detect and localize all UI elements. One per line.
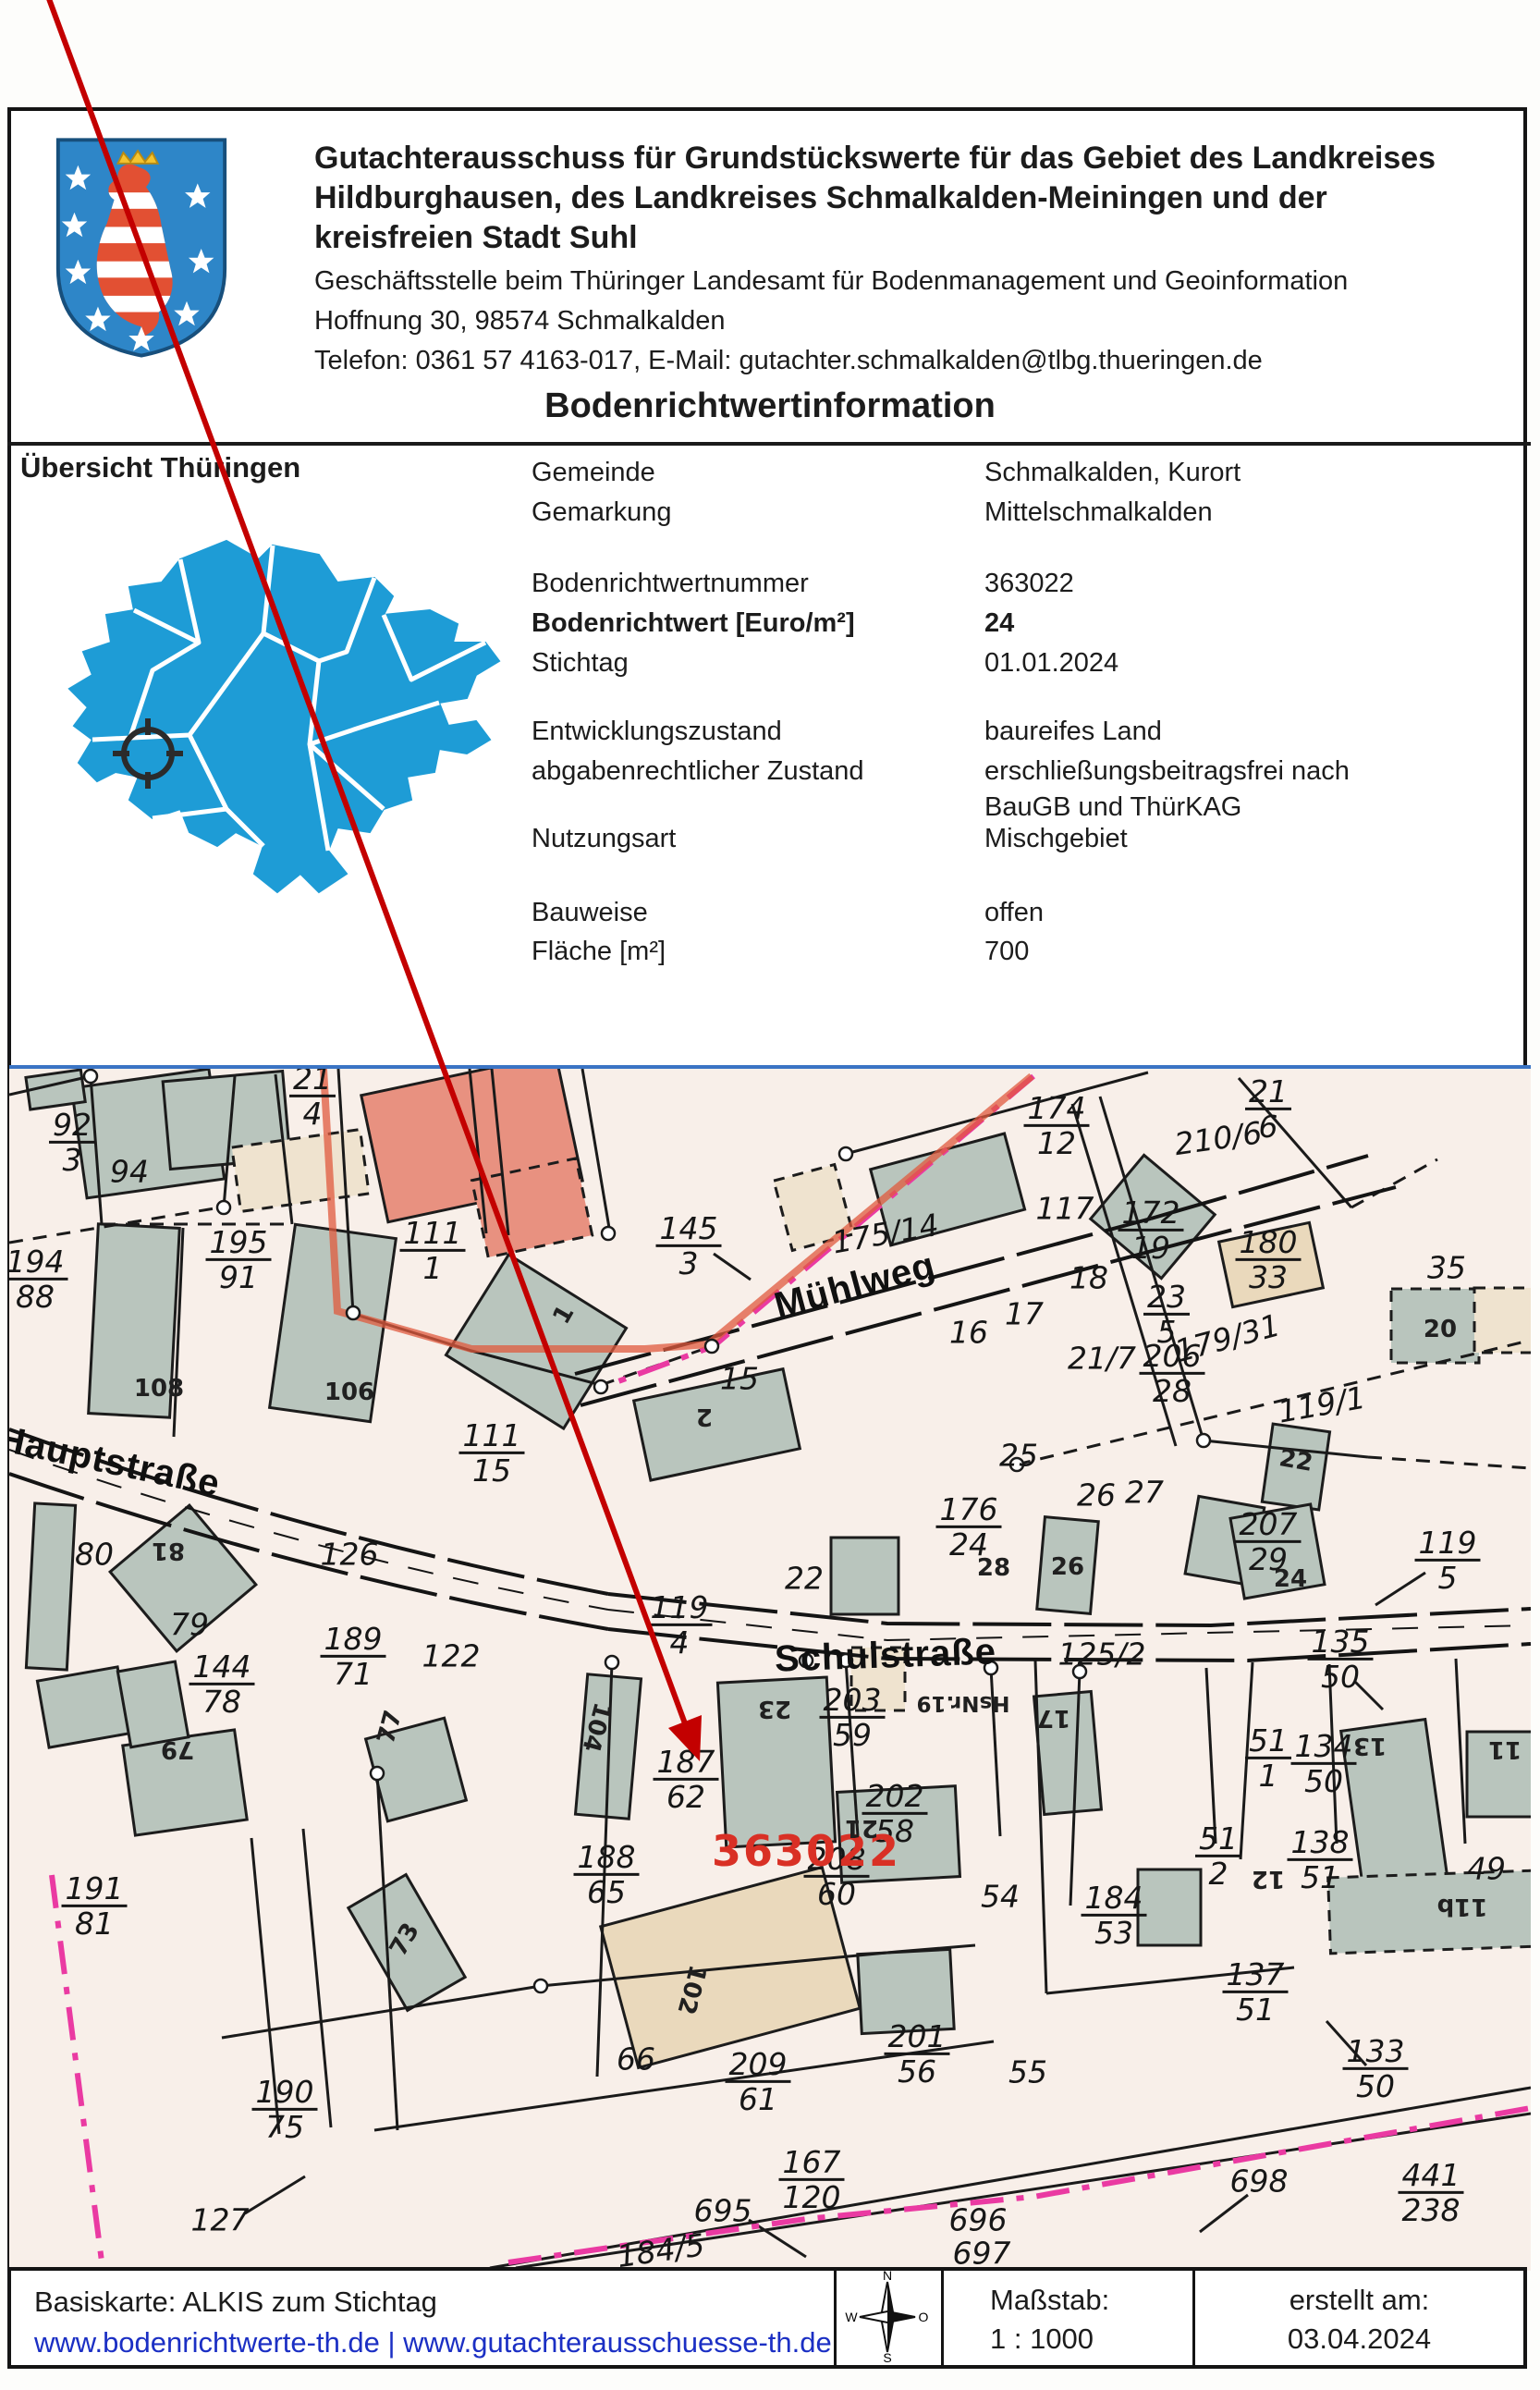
- footer-scale-cell: Maßstab: 1 : 1000: [944, 2271, 1195, 2365]
- info-value-stichtag: 01.01.2024: [984, 645, 1405, 681]
- svg-text:S: S: [883, 2350, 891, 2363]
- map-label: 20628: [1140, 1341, 1205, 1407]
- info-label-stichtag: Stichtag: [532, 645, 966, 681]
- org-contact-line: Telefon: 0361 57 4163-017, E-Mail: gutac…: [314, 346, 1507, 376]
- org-title-line-3: kreisfreien Stadt Suhl: [314, 218, 1507, 258]
- map-label: 26: [1051, 1553, 1084, 1581]
- map-label: 1195: [1415, 1527, 1481, 1594]
- massstab-label: Maßstab:: [990, 2284, 1192, 2317]
- map-footer: Basiskarte: ALKIS zum Stichtag www.boden…: [7, 2267, 1527, 2369]
- map-label: 13350: [1343, 2036, 1409, 2102]
- map-label: 94: [110, 1157, 149, 1189]
- compass-rose-icon: N S W O: [837, 2271, 938, 2363]
- map-label: 54: [981, 1881, 1020, 1914]
- info-label-brw-nummer: Bodenrichtwertnummer: [532, 566, 966, 602]
- basiskarte-text: Basiskarte: ALKIS zum Stichtag: [34, 2286, 437, 2319]
- map-label: 55: [1008, 2057, 1047, 2090]
- map-label: 11: [1488, 1735, 1522, 1763]
- map-label: 2: [696, 1403, 713, 1430]
- bodenrichtwert-document: { "header": { "title_lines": [ "Gutachte…: [0, 0, 1540, 2390]
- map-label: 23: [758, 1695, 791, 1722]
- map-label: 49: [1467, 1854, 1506, 1886]
- map-label: 1194: [647, 1592, 713, 1659]
- thuringia-overview-map: [42, 504, 504, 929]
- street-label: Schulstraße: [774, 1631, 996, 1680]
- map-label: 35: [1427, 1253, 1466, 1285]
- map-label: 15: [720, 1364, 759, 1396]
- footer-links[interactable]: www.bodenrichtwerte-th.de | www.gutachte…: [34, 2326, 832, 2359]
- map-label: 1111: [400, 1218, 466, 1284]
- map-label: 17219: [1118, 1197, 1184, 1264]
- map-label: 19591: [206, 1227, 272, 1293]
- map-label: 441238: [1399, 2160, 1464, 2226]
- map-label: 80: [75, 1539, 114, 1572]
- map-label: 106: [324, 1379, 374, 1406]
- info-value-bauweise: offen: [984, 895, 1405, 931]
- info-value-gemarkung: Mittelschmalkalden: [984, 495, 1405, 531]
- map-label: 104: [576, 1699, 616, 1755]
- map-label: 28: [977, 1554, 1010, 1582]
- map-label: 125/2: [1057, 1639, 1145, 1672]
- map-label: 698: [1230, 2166, 1289, 2199]
- info-value-flaeche: 700: [984, 934, 1405, 970]
- map-label: 117: [1036, 1194, 1094, 1226]
- street-label: Hauptstraße: [9, 1418, 224, 1506]
- org-address-line-1: Geschäftsstelle beim Thüringer Landesamt…: [314, 266, 1507, 297]
- map-label: 695: [694, 2196, 752, 2228]
- map-label: 16: [949, 1318, 988, 1350]
- map-label: 210/6: [1172, 1117, 1264, 1161]
- map-label: 512: [1195, 1823, 1241, 1890]
- map-label: 13851: [1288, 1827, 1353, 1894]
- map-label: 923: [49, 1109, 95, 1176]
- map-label: 73: [385, 1918, 425, 1961]
- erstellt-value: 03.04.2024: [1195, 2323, 1523, 2356]
- map-label: 184/5: [615, 2229, 706, 2271]
- document-title: Bodenrichtwertinformation: [9, 386, 1531, 426]
- map-label: 17: [1037, 1704, 1070, 1732]
- map-label: 20359: [820, 1685, 886, 1751]
- info-label-bauweise: Bauweise: [532, 895, 966, 931]
- map-label: 119/1: [1276, 1382, 1368, 1429]
- overview-heading: Übersicht Thüringen: [20, 451, 300, 484]
- info-value-nutzungsart: Mischgebiet: [984, 821, 1405, 857]
- map-label: 13550: [1308, 1626, 1374, 1693]
- map-label: 13450: [1291, 1731, 1357, 1797]
- map-label: 79: [161, 1735, 194, 1763]
- info-label-nutzungsart: Nutzungsart: [532, 821, 966, 857]
- map-label: 25: [999, 1440, 1038, 1473]
- map-label: 122: [422, 1641, 481, 1673]
- map-label: 18: [1069, 1263, 1108, 1295]
- map-label: 11b: [1437, 1893, 1488, 1920]
- map-label-layer: 2149239419488195911111145317412216210/61…: [9, 1069, 1531, 2271]
- map-label: 77: [373, 1708, 408, 1747]
- svg-text:N: N: [883, 2271, 892, 2283]
- map-label: HsNr.19: [917, 1691, 1010, 1715]
- map-label: 27: [1125, 1477, 1164, 1510]
- map-label: 102: [671, 1962, 711, 2017]
- cadastral-map: 2149239419488195911111145317412216210/61…: [9, 1065, 1531, 2271]
- info-value-gemeinde: Schmalkalden, Kurort: [984, 455, 1405, 491]
- map-label: 18865: [574, 1842, 640, 1908]
- info-label-gemeinde: Gemeinde: [532, 455, 966, 491]
- map-label: 17412: [1024, 1093, 1090, 1159]
- map-label: 79: [170, 1610, 209, 1642]
- info-value-entwicklungszustand: baureifes Land: [984, 714, 1405, 750]
- map-label: 167120: [779, 2147, 845, 2213]
- info-label-gemarkung: Gemarkung: [532, 495, 966, 531]
- map-label: 19181: [62, 1873, 128, 1940]
- svg-text:W: W: [845, 2310, 858, 2324]
- map-label: 17624: [936, 1494, 1002, 1561]
- info-label-entwicklungszustand: Entwicklungszustand: [532, 714, 966, 750]
- info-value-brw-nummer: 363022: [984, 566, 1405, 602]
- map-label: 127: [191, 2205, 250, 2237]
- map-label: 697: [953, 2238, 1011, 2271]
- map-label: 19488: [9, 1246, 68, 1313]
- org-title-line-2: Hildburghausen, des Landkreises Schmalka…: [314, 178, 1507, 218]
- info-label-bodenrichtwert: Bodenrichtwert [Euro/m²]: [532, 606, 966, 642]
- map-label: 20: [1424, 1316, 1457, 1343]
- map-label: 214: [289, 1065, 336, 1130]
- map-label: 66: [617, 2044, 655, 2077]
- map-label: 17: [1005, 1299, 1044, 1331]
- map-label: 20961: [726, 2049, 791, 2115]
- map-label: 1: [547, 1301, 580, 1330]
- info-value-abgabenrechtlich: erschließungsbeitragsfrei nach BauGB und…: [984, 754, 1391, 826]
- map-label: 22: [1277, 1444, 1315, 1477]
- header-divider: [7, 442, 1531, 446]
- info-label-flaeche: Fläche [m²]: [532, 934, 966, 970]
- svg-text:O: O: [919, 2310, 929, 2324]
- info-value-bodenrichtwert: 24: [984, 606, 1405, 642]
- map-label: 1453: [656, 1213, 722, 1280]
- map-label: 13751: [1223, 1959, 1289, 2026]
- map-label: 24: [1274, 1565, 1307, 1593]
- map-label: 22: [785, 1563, 824, 1596]
- map-label: 12: [1252, 1865, 1285, 1893]
- footer-source-cell: Basiskarte: ALKIS zum Stichtag www.boden…: [11, 2271, 837, 2365]
- org-address-line-2: Hoffnung 30, 98574 Schmalkalden: [314, 306, 1507, 337]
- map-label: 18453: [1082, 1882, 1147, 1949]
- map-label: 511: [1245, 1725, 1291, 1792]
- org-title-line-1: Gutachterausschuss für Grundstückswerte …: [314, 139, 1507, 178]
- thuringia-coat-of-arms: [51, 129, 232, 362]
- map-label: 20156: [885, 2021, 950, 2088]
- map-label: 696: [949, 2205, 1008, 2237]
- map-label: 108: [134, 1375, 184, 1403]
- map-label: 14478: [189, 1651, 255, 1718]
- map-label: 26: [1077, 1480, 1116, 1513]
- map-label: 21/7: [1068, 1343, 1136, 1376]
- map-label: 19075: [252, 2077, 318, 2143]
- map-label: 21: [845, 1814, 878, 1842]
- map-label: 81: [152, 1537, 185, 1564]
- erstellt-label: erstellt am:: [1195, 2284, 1523, 2317]
- map-label: 126: [321, 1539, 379, 1572]
- map-label: 18762: [654, 1747, 719, 1813]
- info-label-abgabenrechtlich: abgabenrechtlicher Zustand: [532, 754, 966, 790]
- map-label: 18033: [1236, 1227, 1302, 1293]
- footer-compass-cell: N S W O: [837, 2271, 944, 2365]
- massstab-value: 1 : 1000: [990, 2323, 1192, 2356]
- map-label: 13: [1353, 1732, 1387, 1759]
- map-label: 18971: [321, 1624, 386, 1690]
- map-label: 11115: [459, 1420, 525, 1487]
- footer-date-cell: erstellt am: 03.04.2024: [1195, 2271, 1523, 2365]
